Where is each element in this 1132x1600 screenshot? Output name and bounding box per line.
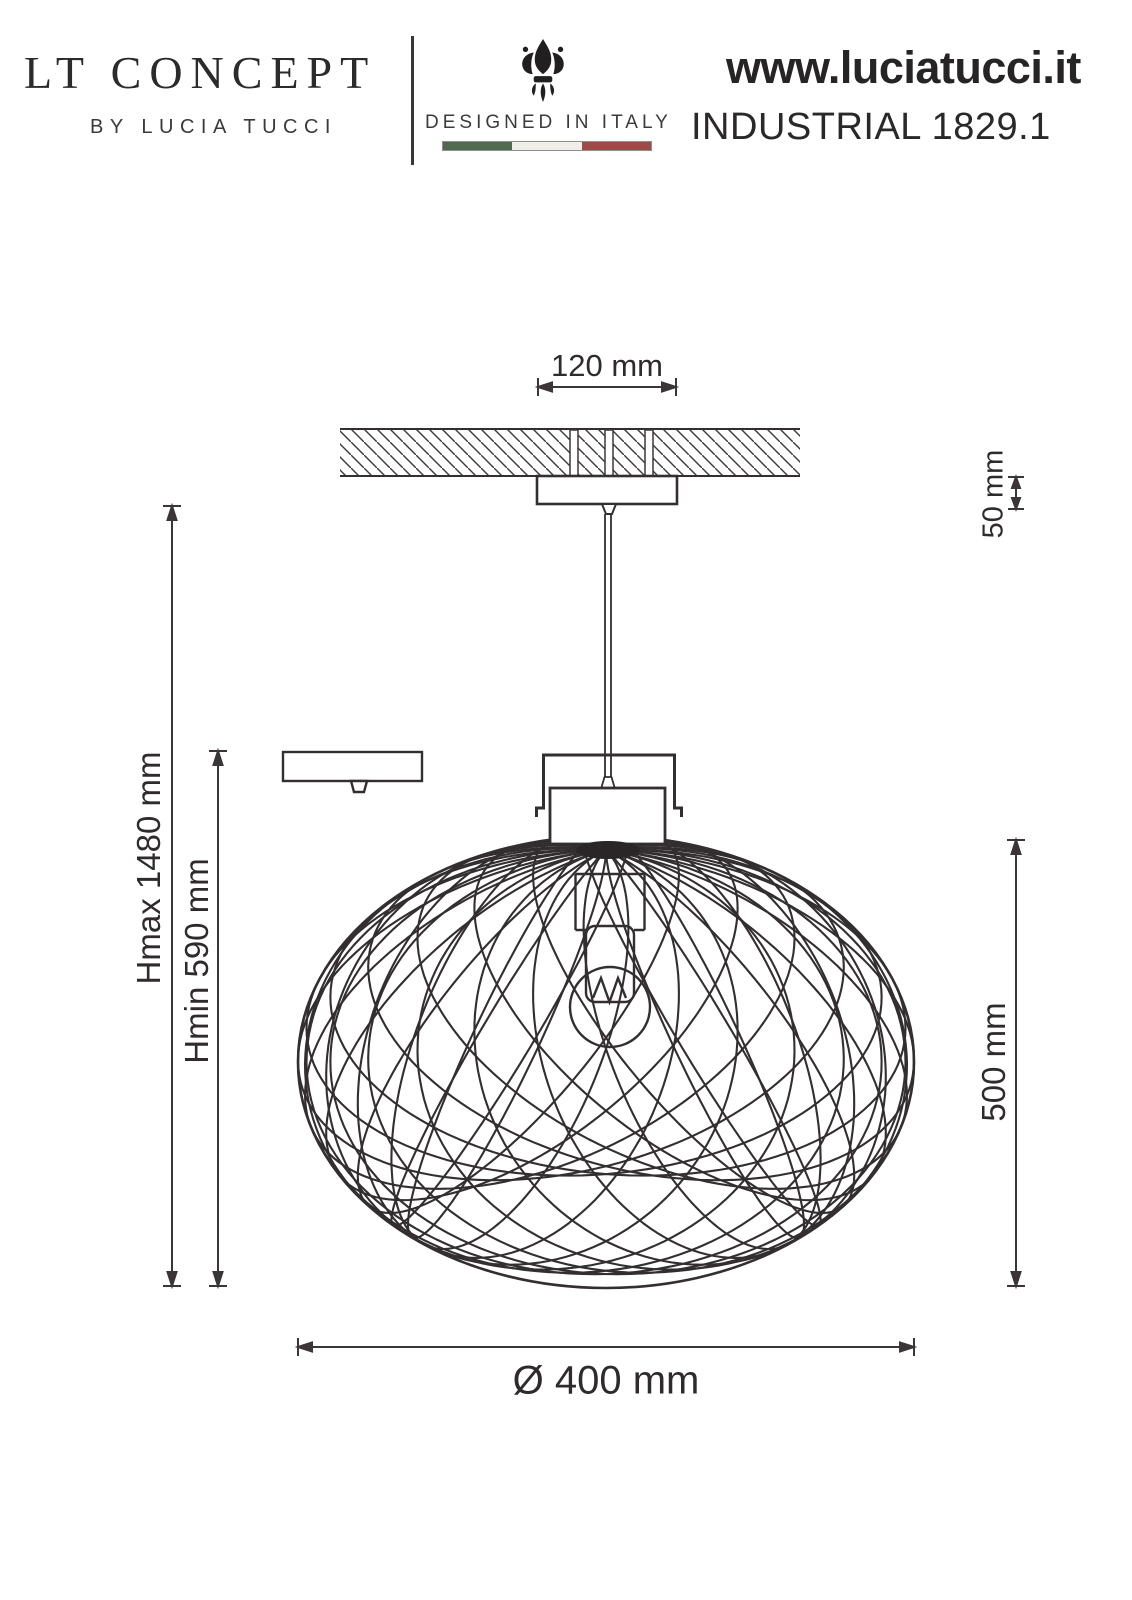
shade-top-collar [576, 841, 640, 859]
dim-label-shade-height: 500 mm [975, 1002, 1013, 1121]
dim-label-canopy-height: 50 mm [978, 450, 1011, 539]
dim-label-min-height: Hmin 590 mm [178, 858, 216, 1063]
dim-label-canopy-width: 120 mm [551, 348, 663, 384]
suspension-cable [601, 514, 615, 789]
dim-label-shade-diameter: Ø 400 mm [513, 1359, 700, 1404]
spec-sheet-page: LT CONCEPT BY LUCIA TUCCI DESIGNED IN IT… [0, 0, 1132, 1600]
canopy-side-view [283, 752, 422, 792]
dim-label-max-height: Hmax 1480 mm [130, 752, 168, 985]
socket-housing [550, 788, 665, 844]
ceiling-canopy [537, 476, 677, 504]
canopy-cable-gland [602, 504, 616, 514]
